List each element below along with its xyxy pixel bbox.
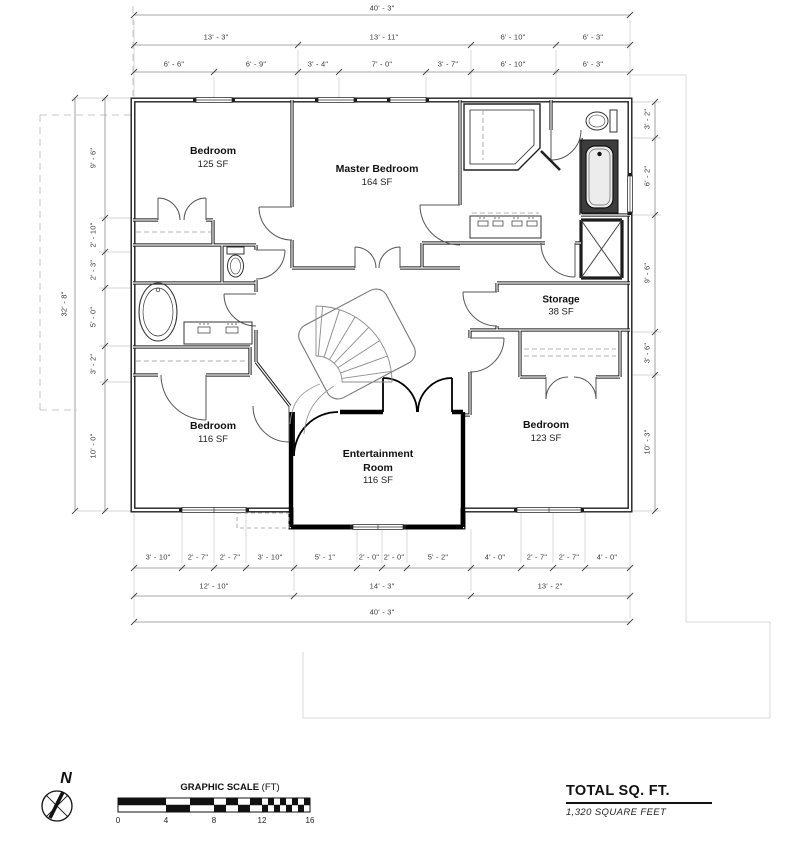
dim-left-1: 2' - 10" — [89, 223, 98, 248]
scale-tick-2: 8 — [212, 816, 216, 825]
north-label: N — [60, 770, 72, 788]
dim-top-mid-1: 13' - 11" — [370, 33, 399, 42]
dim-bottom-detail-5: 2' - 0" — [359, 553, 380, 562]
graphic-scale-title: GRAPHIC SCALE (FT) — [180, 782, 279, 793]
dim-right-2: 9' - 6" — [643, 263, 652, 284]
dim-left-5: 10' - 0" — [89, 434, 98, 459]
vanity-left — [184, 322, 252, 344]
dim-bottom-detail-7: 5' - 2" — [428, 553, 449, 562]
dim-left-2: 2' - 3" — [89, 260, 98, 281]
dashed-reference-lines — [40, 6, 133, 410]
dim-bottom-detail-0: 3' - 10" — [146, 553, 171, 562]
graphic-scale-bar — [118, 798, 310, 812]
dim-bottom-mid-1: 14' - 3" — [370, 582, 395, 591]
dim-top-mid-0: 13' - 3" — [204, 33, 229, 42]
dim-top-detail-5: 6' - 10" — [501, 60, 526, 69]
dim-bottom-detail-4: 5' - 1" — [315, 553, 336, 562]
floor-plan-sheet: Bedroom 125 SF Master Bedroom 164 SF Sto… — [0, 0, 799, 851]
graphic-scale-title-main: GRAPHIC SCALE — [180, 782, 259, 793]
room-label-bedroom-125: Bedroom 125 SF — [190, 145, 236, 171]
total-sqft-block: TOTAL SQ. FT. 1,320 SQUARE FEET — [566, 783, 712, 818]
dim-left-3: 5' - 0" — [89, 307, 98, 328]
shower — [464, 104, 560, 170]
dim-right-4: 10' - 3" — [643, 430, 652, 455]
bathtub-oval-left — [139, 283, 177, 341]
dim-bottom-detail-11: 4' - 0" — [597, 553, 618, 562]
dim-right-1: 6' - 2" — [643, 166, 652, 187]
dim-bottom-mid-0: 12' - 10" — [199, 582, 228, 591]
dim-bottom-detail-8: 4' - 0" — [485, 553, 506, 562]
room-label-bedroom-123: Bedroom 123 SF — [523, 419, 569, 445]
room-label-bedroom-116: Bedroom 116 SF — [190, 420, 236, 446]
dim-top-detail-2: 3' - 4" — [308, 60, 329, 69]
dim-bottom-detail-6: 2' - 0" — [384, 553, 405, 562]
dim-bottom-mid-2: 13' - 2" — [538, 582, 563, 591]
room-label-master-bedroom: Master Bedroom 164 SF — [336, 163, 419, 189]
dim-right-3: 3' - 6" — [643, 343, 652, 364]
dim-left-0: 9' - 6" — [89, 148, 98, 169]
dim-top-detail-0: 6' - 6" — [164, 60, 185, 69]
entertainment-doors — [294, 378, 452, 456]
room-label-entertainment: Entertainment Room 116 SF — [335, 448, 421, 488]
dim-right-0: 3' - 2" — [643, 109, 652, 130]
dim-bottom-detail-3: 3' - 10" — [258, 553, 283, 562]
dim-bottom-detail-10: 2' - 7" — [559, 553, 580, 562]
dim-top-detail-4: 3' - 7" — [438, 60, 459, 69]
scale-tick-0: 0 — [116, 816, 120, 825]
room-label-storage: Storage 38 SF — [542, 293, 579, 318]
total-sqft-title: TOTAL SQ. FT. — [566, 783, 712, 804]
floor-plan-drawing — [0, 0, 799, 851]
linen-closet-x — [581, 220, 622, 278]
dim-bottom-detail-9: 2' - 7" — [527, 553, 548, 562]
dim-top-mid-2: 6' - 10" — [501, 33, 526, 42]
dim-top-detail-3: 7' - 0" — [372, 60, 393, 69]
dim-top-mid-3: 6' - 3" — [583, 33, 604, 42]
toilet-wc-left — [227, 247, 244, 277]
graphic-scale-unit: (FT) — [262, 782, 280, 793]
bathtub-right — [581, 140, 618, 213]
dim-bottom-overall: 40' - 3" — [370, 608, 395, 617]
vanity-master-bath — [470, 216, 541, 238]
dim-bottom-detail-1: 2' - 7" — [188, 553, 209, 562]
dim-top-detail-1: 6' - 9" — [246, 60, 267, 69]
dim-top-overall: 40' - 3" — [370, 4, 395, 13]
dim-top-detail-6: 6' - 3" — [583, 60, 604, 69]
scale-tick-4: 16 — [306, 816, 315, 825]
dim-bottom-detail-2: 2' - 7" — [220, 553, 241, 562]
total-sqft-value: 1,320 SQUARE FEET — [566, 807, 712, 818]
dim-left-4: 3' - 2" — [89, 354, 98, 375]
scale-tick-1: 4 — [164, 816, 168, 825]
toilet-wc-right — [586, 110, 617, 132]
north-arrow-icon — [42, 791, 72, 821]
scale-tick-3: 12 — [258, 816, 267, 825]
dim-left-overall: 32' - 8" — [60, 292, 69, 317]
